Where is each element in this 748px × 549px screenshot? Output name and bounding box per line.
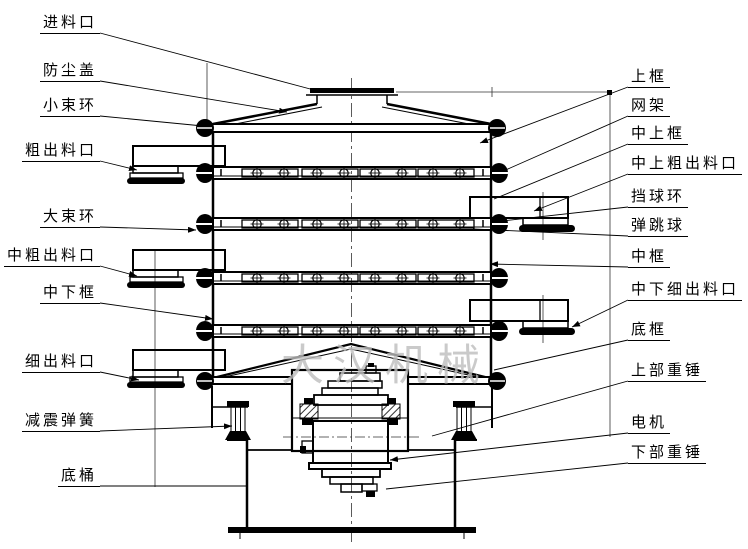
- label-mid-coarse-outlet: 中粗出料口: [4, 246, 100, 267]
- label-mid-upper-frame: 中上框: [628, 124, 688, 145]
- leader-small-clamp-ring: [100, 116, 203, 126]
- vibrating-sieve-diagram: 大汉机械 进料口 防尘盖 小束环 粗出料口 大束环 中粗出料口 中下框 细出料口…: [0, 0, 748, 549]
- leader-mid-lower-frame: [100, 303, 213, 319]
- motor-body: [313, 421, 388, 463]
- label-coarse-outlet: 粗出料口: [22, 141, 100, 162]
- label-mid-upper-coarse-outlet: 中上粗出料口: [628, 154, 742, 175]
- label-large-clamp-ring: 大束环: [40, 207, 100, 228]
- screen-deck-4: [196, 321, 508, 341]
- leader-motor: [390, 433, 628, 460]
- motor-assembly: [292, 363, 408, 497]
- label-bottom-frame: 底框: [628, 320, 670, 341]
- label-middle-frame: 中框: [628, 247, 670, 268]
- leader-mid-lower-fine-outlet: [572, 300, 628, 327]
- label-fine-outlet: 细出料口: [22, 352, 100, 373]
- label-small-clamp-ring: 小束环: [40, 96, 100, 117]
- label-dust-cover: 防尘盖: [40, 61, 100, 82]
- leader-bottom-frame: [494, 340, 628, 370]
- dust-cover: [213, 104, 491, 126]
- leader-lower-weight: [386, 463, 628, 489]
- leader-large-clamp-ring: [100, 227, 196, 230]
- leader-mesh-frame: [492, 116, 628, 176]
- label-upper-frame: 上框: [628, 67, 670, 88]
- label-feed-inlet: 进料口: [40, 13, 100, 34]
- leader-coarse-outlet: [100, 161, 137, 170]
- screen-deck-1: [196, 163, 508, 183]
- leader-dust-cover: [100, 81, 287, 112]
- label-mesh-frame: 网架: [628, 96, 670, 117]
- leader-middle-frame: [490, 264, 628, 267]
- mid-lower-fine-outlet-spout: [470, 300, 575, 335]
- label-ball-stop-ring: 挡球环: [628, 187, 688, 208]
- label-bouncing-ball: 弹跳球: [628, 216, 688, 237]
- leader-mid-upper-coarse-outlet: [534, 174, 628, 211]
- label-base-barrel: 底桶: [58, 466, 100, 487]
- label-motor: 电机: [628, 413, 670, 434]
- screen-deck-2: [196, 214, 508, 234]
- feed-inlet: [306, 88, 398, 104]
- leader-mid-upper-frame: [494, 144, 628, 199]
- leader-mid-coarse-outlet: [100, 266, 137, 276]
- label-lower-weight: 下部重锤: [628, 443, 706, 464]
- construction-lines: [155, 63, 612, 543]
- damping-spring-left: [225, 401, 251, 440]
- lower-weight-stack: [322, 469, 380, 497]
- label-mid-lower-fine-outlet: 中下细出料口: [628, 280, 742, 301]
- label-mid-lower-frame: 中下框: [40, 283, 100, 304]
- label-upper-weight: 上部重锤: [628, 361, 706, 382]
- screen-deck-3: [196, 268, 508, 288]
- damping-spring-right: [451, 401, 477, 440]
- label-damping-spring: 减震弹簧: [22, 411, 100, 432]
